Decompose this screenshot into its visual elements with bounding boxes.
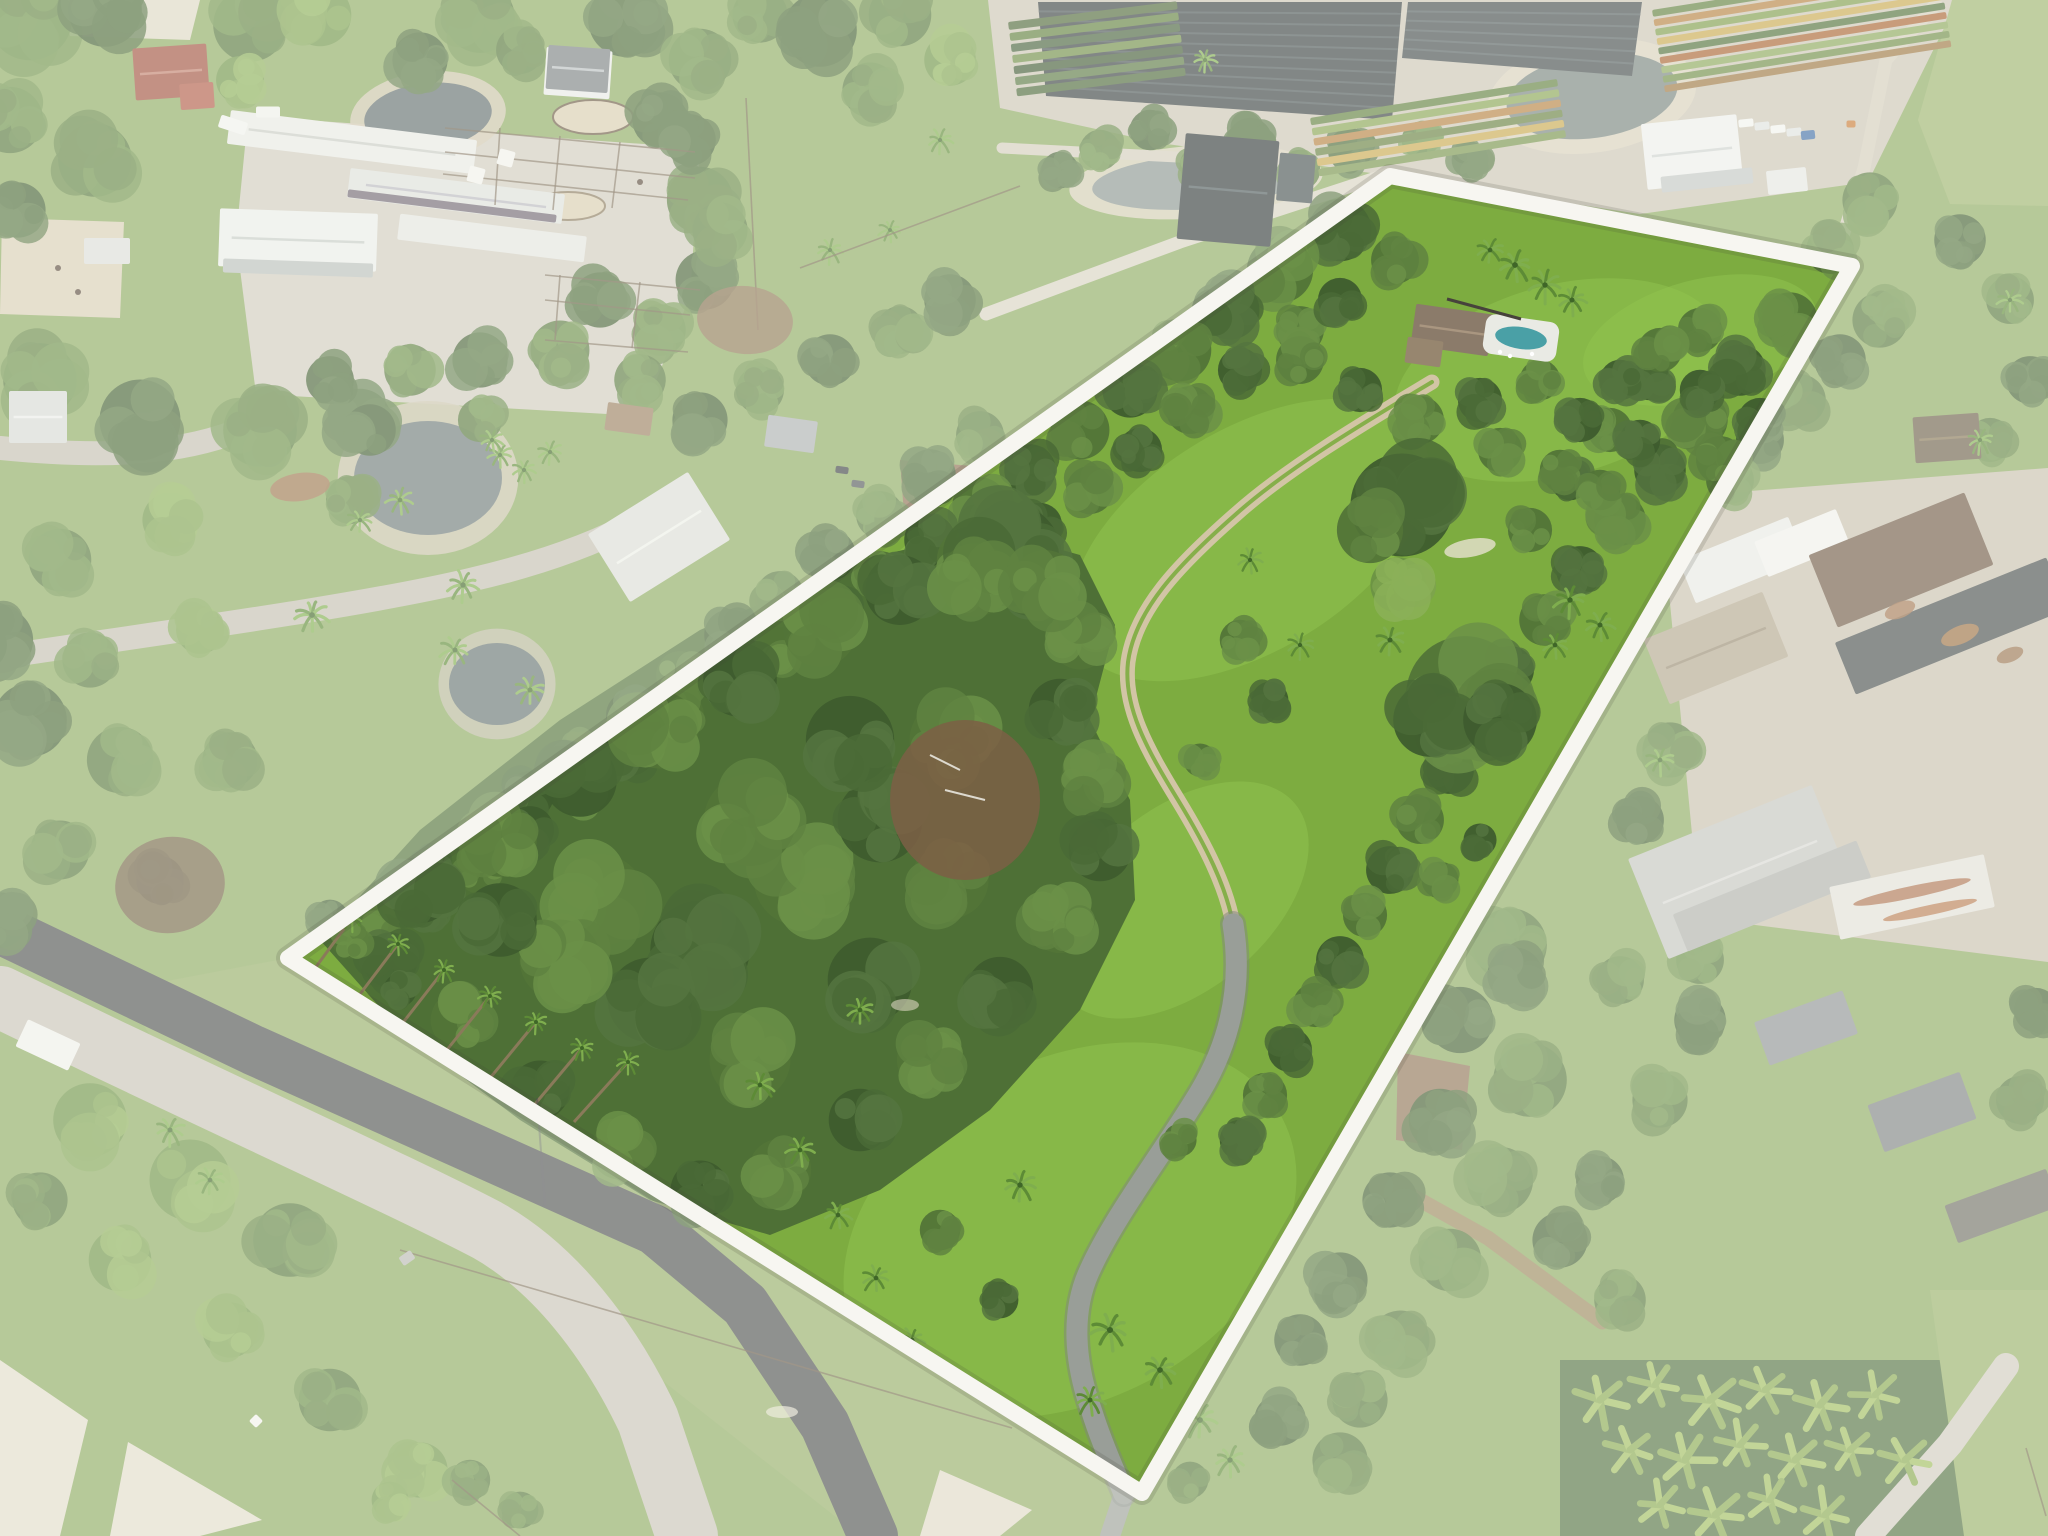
- tree-cluster-inside: [1247, 679, 1291, 724]
- pool-lounger: [1508, 354, 1512, 358]
- aerial-photo-stage: [0, 0, 2048, 1536]
- mud-patch: [890, 720, 1040, 880]
- pool-lounger: [1530, 352, 1534, 356]
- sand-spot: [891, 999, 919, 1011]
- residence-wing: [1404, 337, 1443, 368]
- aerial-photo: [0, 0, 2048, 1536]
- pool-lounger: [1498, 350, 1502, 354]
